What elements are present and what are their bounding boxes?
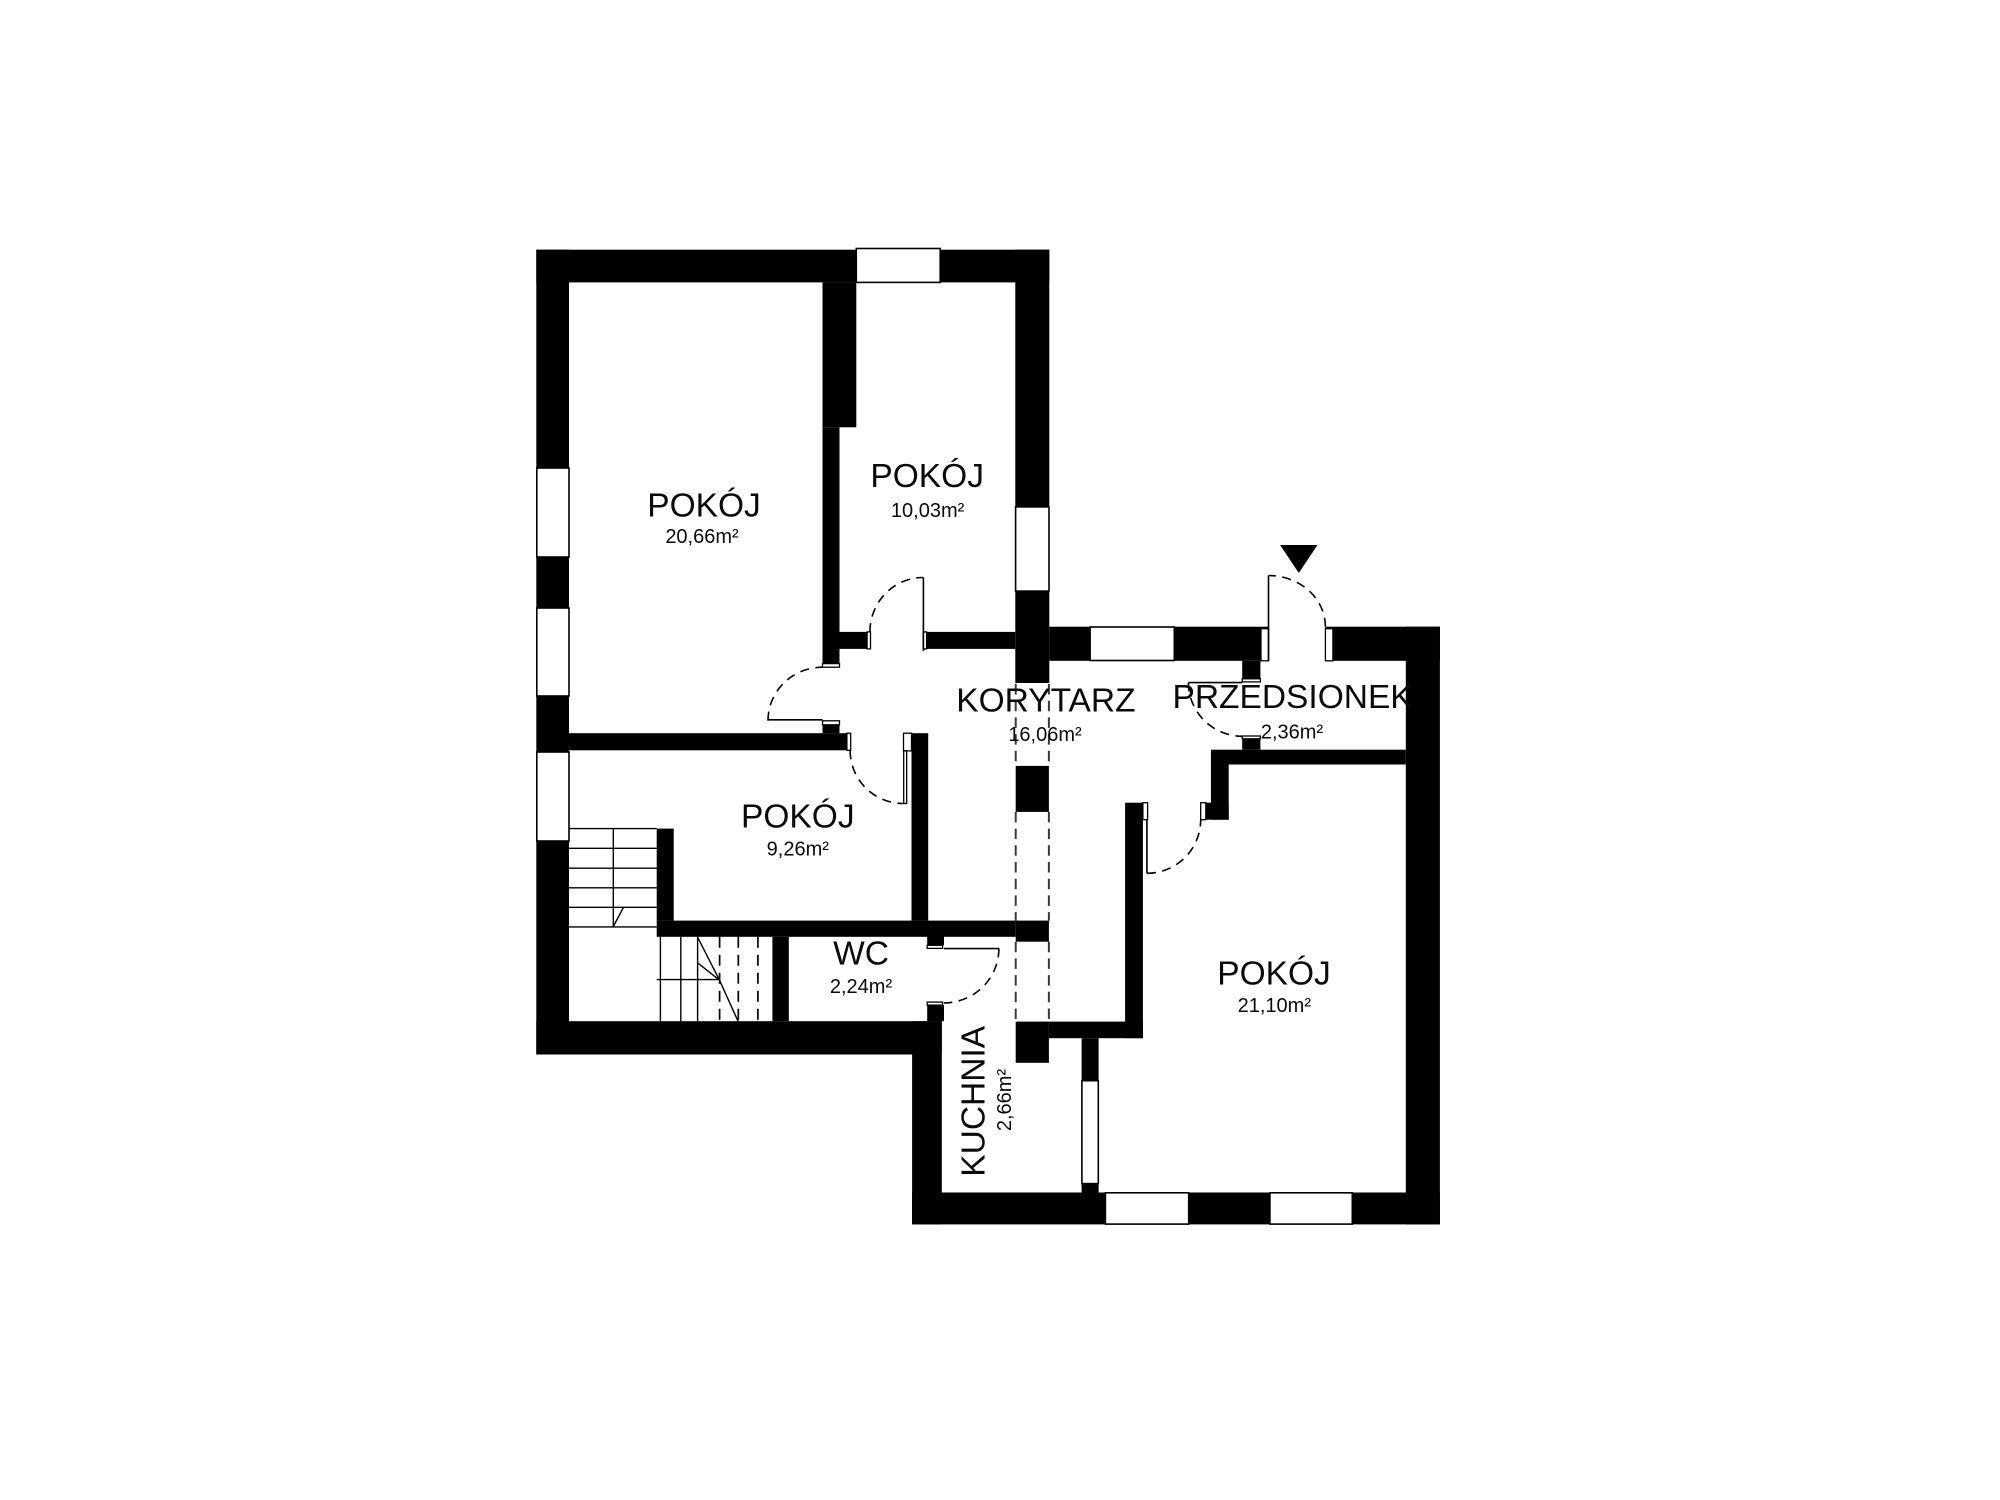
svg-text:PRZEDSIONEK: PRZEDSIONEK [1173,679,1413,716]
svg-text:9,26m²: 9,26m² [767,838,830,860]
svg-text:POKÓJ: POKÓJ [870,457,984,495]
svg-text:KORYTARZ: KORYTARZ [956,682,1135,719]
svg-text:21,10m²: 21,10m² [1238,995,1312,1017]
svg-text:2,24m²: 2,24m² [830,976,893,998]
svg-text:16,06m²: 16,06m² [1008,724,1082,746]
svg-text:WC: WC [833,935,889,972]
svg-text:20,66m²: 20,66m² [665,526,739,548]
svg-text:POKÓJ: POKÓJ [647,487,761,525]
svg-text:2,36m²: 2,36m² [1261,722,1324,744]
svg-text:10,03m²: 10,03m² [891,500,965,522]
svg-text:POKÓJ: POKÓJ [741,797,855,835]
svg-text:2,66m²: 2,66m² [994,1069,1016,1132]
svg-text:POKÓJ: POKÓJ [1217,955,1331,993]
svg-text:KUCHNIA: KUCHNIA [956,1025,993,1176]
